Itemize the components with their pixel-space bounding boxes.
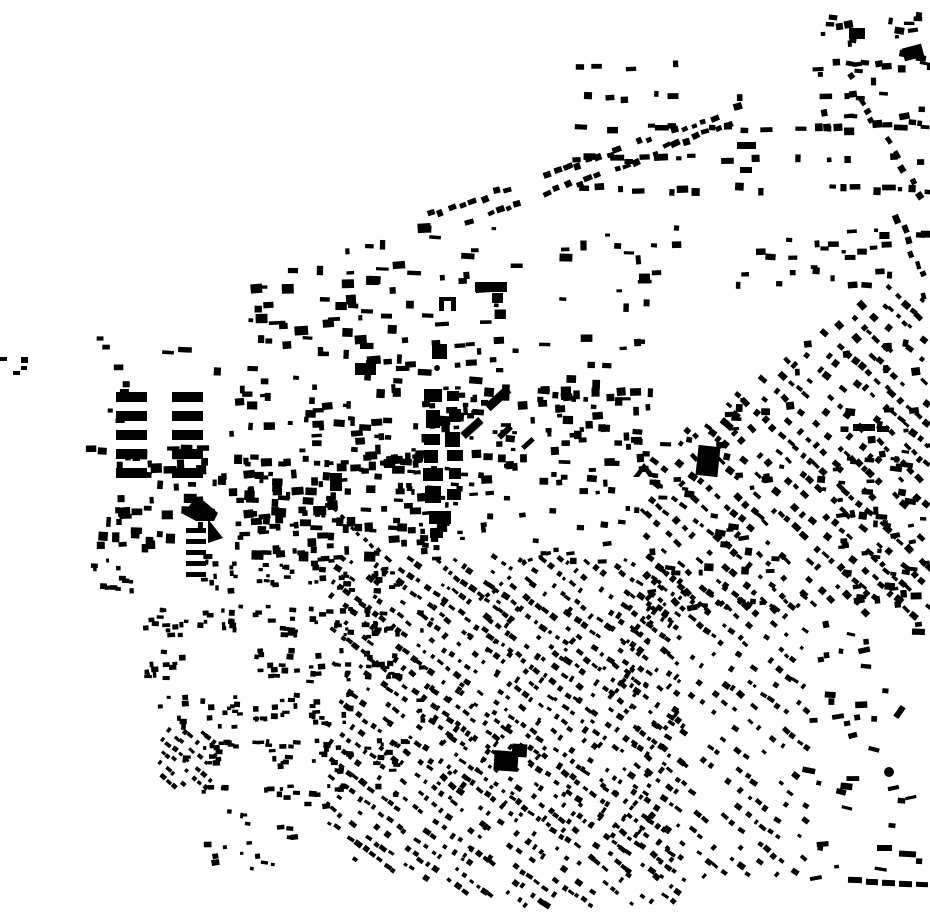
building-footprint-map (0, 0, 930, 924)
figure-ground-map (0, 0, 930, 924)
